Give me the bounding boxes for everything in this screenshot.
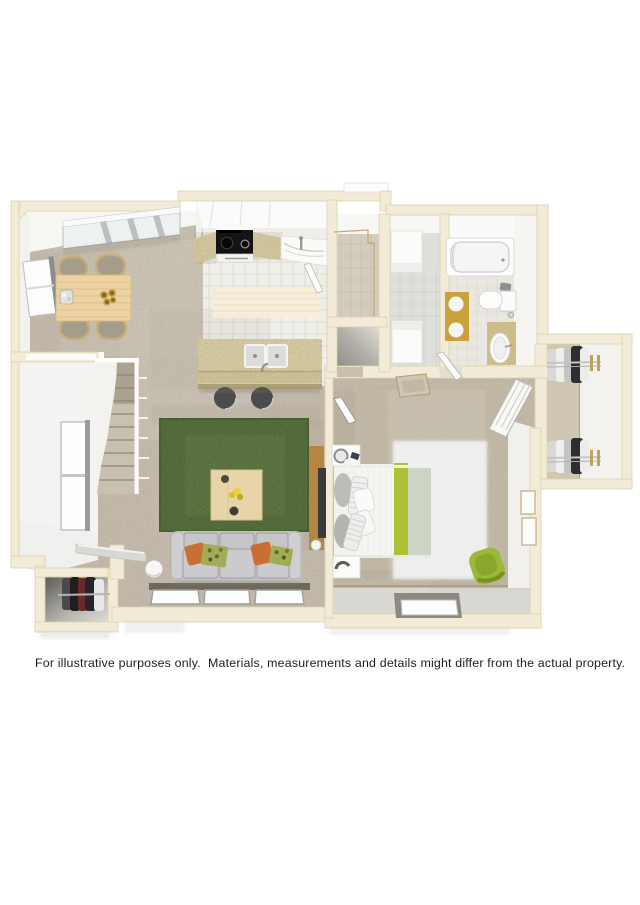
svg-text:For illustrative purposes only: For illustrative purposes only. Material… xyxy=(35,656,625,670)
